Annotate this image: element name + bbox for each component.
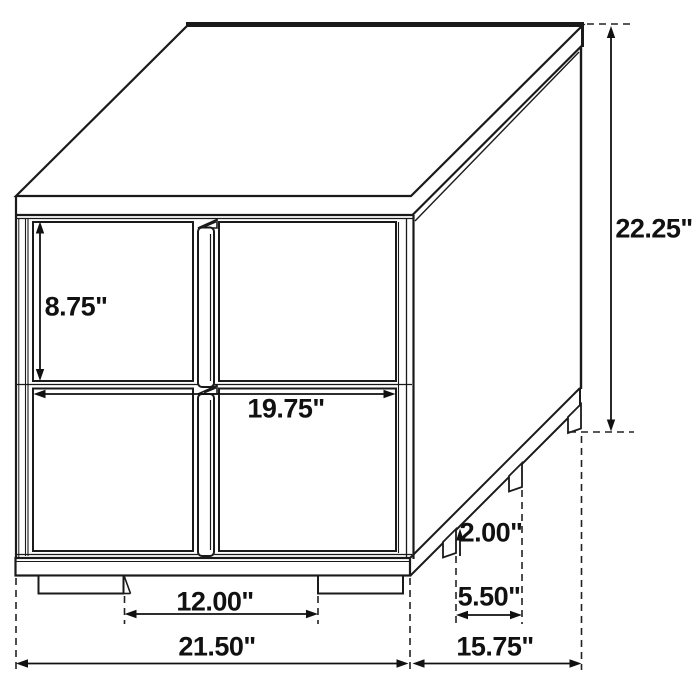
label-leg-height: 2.00" xyxy=(460,520,523,547)
drawer-handles xyxy=(198,220,217,557)
side-leg-middle xyxy=(509,463,522,492)
front-leg-left xyxy=(39,576,124,594)
drawer-panel-bottom-left xyxy=(33,389,193,552)
front-leg-right xyxy=(318,576,403,594)
drawer-panel-top-right xyxy=(219,222,396,381)
base-rail-front xyxy=(16,558,411,576)
furniture-line-drawing xyxy=(0,0,700,700)
dim-overall-height xyxy=(607,26,615,432)
dimension-diagram: 8.75" 19.75" 22.25" 12.00" 21.50" 2.00" … xyxy=(0,0,700,700)
label-drawer-height: 8.75" xyxy=(45,294,108,321)
dim-side-leg-spacing xyxy=(456,611,522,619)
side-leg-front xyxy=(443,529,456,558)
label-drawer-width: 19.75" xyxy=(247,396,324,423)
side-leg-back xyxy=(568,404,581,433)
handle-bottom-drawer xyxy=(198,394,214,556)
label-overall-width: 21.50" xyxy=(178,634,255,661)
side-base-bottom-edge xyxy=(410,406,580,576)
top-panel xyxy=(16,24,584,216)
label-side-leg-spacing: 5.50" xyxy=(458,584,521,611)
label-overall-depth: 15.75" xyxy=(456,634,533,661)
label-overall-height: 22.25" xyxy=(615,216,692,243)
handle-top-drawer xyxy=(198,228,214,388)
label-front-leg-spacing: 12.00" xyxy=(176,589,253,616)
top-surface xyxy=(16,25,583,196)
